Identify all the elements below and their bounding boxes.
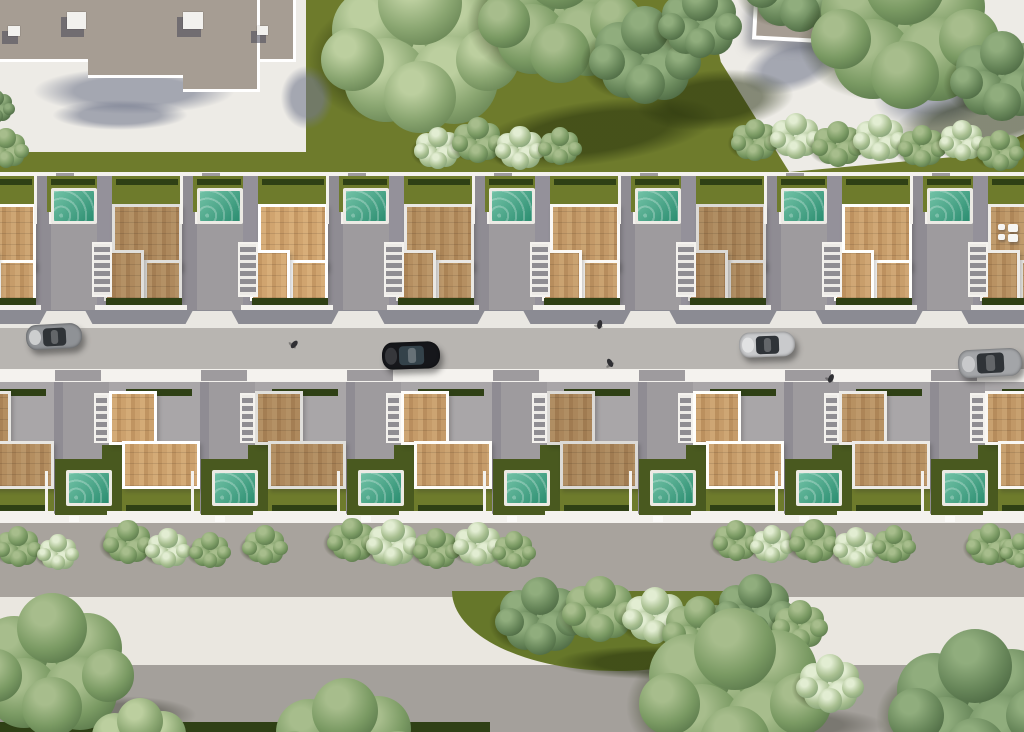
tree-clump (312, 678, 378, 732)
pool-ripples (930, 191, 970, 221)
tree-clump (103, 537, 119, 553)
driveway-pad (51, 224, 97, 313)
pool-ripples (784, 191, 824, 221)
plunge-pool (927, 188, 973, 224)
tree-clump (885, 525, 903, 543)
front-hedge (252, 298, 328, 305)
tree-clump (495, 143, 511, 159)
roof-deck-leg (1020, 260, 1024, 301)
tree-clump (853, 132, 870, 149)
roof-deck-main (414, 441, 492, 489)
tree-clump (811, 9, 871, 69)
upper-deck (985, 391, 1024, 445)
tree-clump (49, 534, 67, 552)
pool-water (507, 473, 547, 503)
pool-water (54, 191, 94, 221)
plunge-pool (358, 470, 404, 506)
tree-clump (1012, 533, 1024, 550)
staircase (532, 393, 547, 443)
staircase (240, 393, 255, 443)
aerial-render-stage (0, 0, 1024, 732)
pool-water (945, 473, 985, 503)
tree-clump (1009, 146, 1024, 161)
driveway-pad (489, 224, 535, 313)
tree-clump (145, 544, 159, 558)
wall-post (653, 516, 663, 522)
front-wall (545, 511, 638, 518)
tree-clump (453, 539, 469, 555)
rear-hedge (197, 179, 241, 185)
plunge-pool (942, 470, 988, 506)
upper-deck (693, 391, 741, 445)
roof-deck-leg (144, 260, 182, 301)
pool-water (930, 191, 970, 221)
staircase (824, 393, 839, 443)
car (382, 341, 441, 370)
rear-hedge-2 (0, 179, 32, 185)
side-wall-l (775, 471, 778, 513)
roof-deck-leg (582, 260, 620, 301)
tree-clump (639, 673, 701, 732)
staircase (92, 242, 112, 297)
pool-water (492, 191, 532, 221)
roof-access-box (257, 26, 268, 35)
tree-clump (37, 548, 50, 561)
driveway-pad (197, 224, 243, 313)
tree-clump (977, 146, 992, 161)
side-wall-l (180, 174, 183, 224)
tree-clump (3, 103, 15, 115)
tree-clump (8, 526, 28, 546)
roof-deck-main (706, 441, 784, 489)
side-wall-l (337, 471, 340, 513)
rear-hedge-2 (700, 179, 762, 185)
roof-deck-main (852, 441, 930, 489)
upper-deck (401, 391, 449, 445)
driveway-apron (623, 311, 677, 325)
driveway-apron (493, 370, 539, 381)
tree-clump (321, 28, 384, 91)
tree-clump (505, 531, 523, 549)
side-wall-l (472, 174, 475, 224)
tree-clump (938, 629, 1012, 703)
driveway-apron (769, 311, 823, 325)
patio-furniture (1008, 224, 1018, 232)
tree-clump (160, 551, 176, 567)
pool-water (215, 473, 255, 503)
tree-clump (17, 593, 87, 663)
staircase (386, 393, 401, 443)
tree-clump (1013, 553, 1024, 567)
car-hood-shine (385, 348, 397, 365)
front-hedge (544, 298, 620, 305)
townhouse-unit (939, 375, 1024, 525)
tree-clump (189, 546, 202, 559)
tree-clump (511, 152, 529, 170)
tree-clump (796, 677, 818, 699)
side-wall-l (629, 471, 632, 513)
tree-clump (562, 602, 586, 626)
pool-water (200, 191, 240, 221)
wall-post (69, 516, 79, 522)
roof-deck-leg (874, 260, 912, 301)
plunge-pool (197, 188, 243, 224)
tree-clump (509, 126, 531, 148)
rear-hedge (343, 179, 387, 185)
pool-water (799, 473, 839, 503)
tree-clump (14, 144, 28, 158)
tree-clump (551, 127, 569, 145)
tree-clump (789, 536, 805, 552)
car (957, 347, 1022, 378)
staircase (822, 242, 842, 297)
driveway-apron (185, 311, 239, 325)
pool-ripples (492, 191, 532, 221)
pool-ripples (799, 473, 839, 503)
car (25, 323, 82, 351)
plunge-pool (796, 470, 842, 506)
roof-deck-main (122, 441, 200, 489)
side-wall-l (326, 174, 329, 224)
driveway-apron (785, 370, 831, 381)
driveway-pad (343, 224, 389, 313)
driveway-pad (927, 224, 973, 313)
driveway-apron (347, 370, 393, 381)
driveway-pad (635, 224, 681, 313)
tree-clump (966, 539, 982, 555)
street-tree (883, 620, 1024, 732)
pool-ripples (507, 473, 547, 503)
roof-deck-main (268, 441, 346, 489)
roof-access-box (183, 12, 203, 29)
car-roof-shine (50, 329, 59, 343)
walkway-bush (999, 531, 1024, 573)
car-roof-shine (407, 348, 416, 363)
tree-clump (872, 540, 886, 554)
upper-deck (109, 391, 157, 445)
townhouse-unit (927, 172, 1024, 322)
roof-deck-main (560, 441, 638, 489)
car (739, 331, 796, 358)
tree-clump (990, 130, 1010, 150)
pool-water (638, 191, 678, 221)
tree-clump (327, 535, 343, 551)
roof-access-box (8, 26, 20, 36)
car-hood-shine (29, 330, 41, 346)
wall-post (945, 516, 955, 522)
wall-post (507, 516, 517, 522)
patio-furniture (998, 224, 1005, 230)
tree-clump (65, 548, 78, 561)
bush (0, 88, 16, 128)
front-wall (983, 511, 1024, 518)
pool-ripples (346, 191, 386, 221)
street-tree (83, 693, 198, 732)
staircase (238, 242, 258, 297)
plunge-pool (650, 470, 696, 506)
pool-ripples (215, 473, 255, 503)
plunge-pool (212, 470, 258, 506)
staircase (968, 242, 988, 297)
plunge-pool (66, 470, 112, 506)
rear-hedge-2 (408, 179, 470, 185)
tree-clump (158, 528, 177, 547)
pool-ripples (69, 473, 109, 503)
pool-ripples (200, 191, 240, 221)
driveway-apron (201, 370, 247, 381)
tree-clump (568, 142, 582, 156)
driveway-apron (639, 370, 685, 381)
staircase (678, 393, 693, 443)
tree-clump (992, 154, 1009, 171)
driveway-pad (781, 224, 827, 313)
tree-clump (217, 546, 230, 559)
plunge-pool (489, 188, 535, 224)
tree-clump (242, 541, 256, 555)
staircase (94, 393, 109, 443)
roof-deck-leg (0, 260, 36, 301)
tree-clump (694, 608, 776, 690)
tree-clump (495, 608, 524, 637)
rear-hedge-2 (554, 179, 616, 185)
tree-clump (273, 541, 287, 555)
tree-clump (506, 553, 522, 569)
patio-furniture (998, 234, 1005, 240)
front-hedge (0, 298, 36, 305)
tree-clump (452, 135, 469, 152)
plunge-pool (504, 470, 550, 506)
side-wall-l (34, 174, 37, 224)
pool-ripples (638, 191, 678, 221)
driveway-apron (915, 311, 969, 325)
tree-clump (888, 688, 944, 732)
walkway-bush (36, 532, 80, 576)
upper-deck (839, 391, 887, 445)
front-wall (837, 511, 930, 518)
tree-clump (117, 698, 163, 732)
bush (0, 126, 30, 174)
pool-ripples (54, 191, 94, 221)
driveway-apron (55, 370, 101, 381)
side-wall-l (618, 174, 621, 224)
tree-clump (522, 546, 536, 560)
tree-clump (413, 544, 428, 559)
tree-clump (939, 136, 954, 151)
tree-clump (658, 13, 685, 40)
roof-access-box (67, 12, 86, 29)
side-wall-l (910, 174, 913, 224)
front-hedge (836, 298, 912, 305)
wall-post (215, 516, 225, 522)
patio-furniture (1008, 234, 1018, 242)
pool-water (69, 473, 109, 503)
plunge-pool (781, 188, 827, 224)
rear-hedge-2 (846, 179, 908, 185)
tree-clump (818, 688, 842, 712)
walkway-bush (871, 523, 917, 569)
driveway-apron (331, 311, 385, 325)
tree-clump (383, 547, 403, 567)
upper-deck (255, 391, 303, 445)
tree-clump (750, 540, 764, 554)
pool-ripples (361, 473, 401, 503)
plunge-pool (635, 188, 681, 224)
staircase (676, 242, 696, 297)
walkway-bush (188, 530, 232, 574)
roof-deck-main (998, 441, 1024, 489)
front-hedge (106, 298, 182, 305)
roof-deck-leg (728, 260, 766, 301)
staircase (384, 242, 404, 297)
car-hood-shine (961, 355, 975, 372)
bush (975, 127, 1024, 177)
tree-clump (805, 545, 823, 563)
tree-clump (902, 540, 916, 554)
bush (537, 125, 583, 171)
driveway-apron (477, 311, 531, 325)
tree-clump (812, 139, 829, 156)
pool-ripples (653, 473, 693, 503)
front-hedge (982, 298, 1024, 305)
pool-ripples (945, 473, 985, 503)
pool-water (653, 473, 693, 503)
tree-clump (10, 550, 27, 567)
rear-hedge (635, 179, 679, 185)
tree-clump (589, 44, 625, 80)
street-tree (263, 670, 428, 732)
tree-clump (770, 131, 787, 148)
side-wall-l (191, 471, 194, 513)
rear-hedge (927, 179, 971, 185)
tree-clump (492, 546, 506, 560)
pool-water (784, 191, 824, 221)
tree-clump (201, 532, 219, 550)
front-hedge (690, 298, 766, 305)
front-hedge (398, 298, 474, 305)
side-wall-l (921, 471, 924, 513)
side-wall-l (45, 471, 48, 513)
rear-hedge-2 (992, 179, 1024, 185)
side-wall-l (483, 471, 486, 513)
tree-clump (898, 141, 914, 157)
rear-hedge (781, 179, 825, 185)
tree-clump (983, 83, 1020, 120)
tree-clump (950, 66, 983, 99)
tree-clump (980, 31, 1024, 75)
rear-hedge-2 (262, 179, 324, 185)
walkway-bush (491, 529, 537, 575)
plunge-pool (343, 188, 389, 224)
tree-clump (255, 525, 274, 544)
tree-clump (257, 548, 273, 564)
upper-deck (547, 391, 595, 445)
road-asphalt (0, 328, 1024, 370)
rear-hedge (489, 179, 533, 185)
rear-hedge (51, 179, 95, 185)
tree-clump (366, 537, 383, 554)
staircase (530, 242, 550, 297)
tree-clump (713, 536, 728, 551)
pool-water (346, 191, 386, 221)
car-roof-shine (763, 337, 771, 351)
car-roof-shine (986, 355, 996, 371)
plunge-pool (51, 188, 97, 224)
shadow-blob (30, 95, 210, 135)
walkway-bush (241, 523, 289, 571)
tree-clump (833, 543, 848, 558)
tree-clump (552, 149, 568, 165)
staircase (970, 393, 985, 443)
upper-deck (0, 391, 11, 445)
tree-clump (414, 143, 430, 159)
side-wall-l (764, 174, 767, 224)
tree-clump (731, 135, 747, 151)
tree-clump (886, 547, 902, 563)
tree-clump (0, 542, 10, 557)
tree-clump (1000, 547, 1013, 560)
car-hood-shine (742, 337, 754, 352)
roof-deck-leg (290, 260, 328, 301)
rear-hedge-2 (116, 179, 178, 185)
tree-clump (0, 128, 16, 147)
pool-water (361, 473, 401, 503)
tree-clump (538, 142, 552, 156)
roof-deck-leg (436, 260, 474, 301)
